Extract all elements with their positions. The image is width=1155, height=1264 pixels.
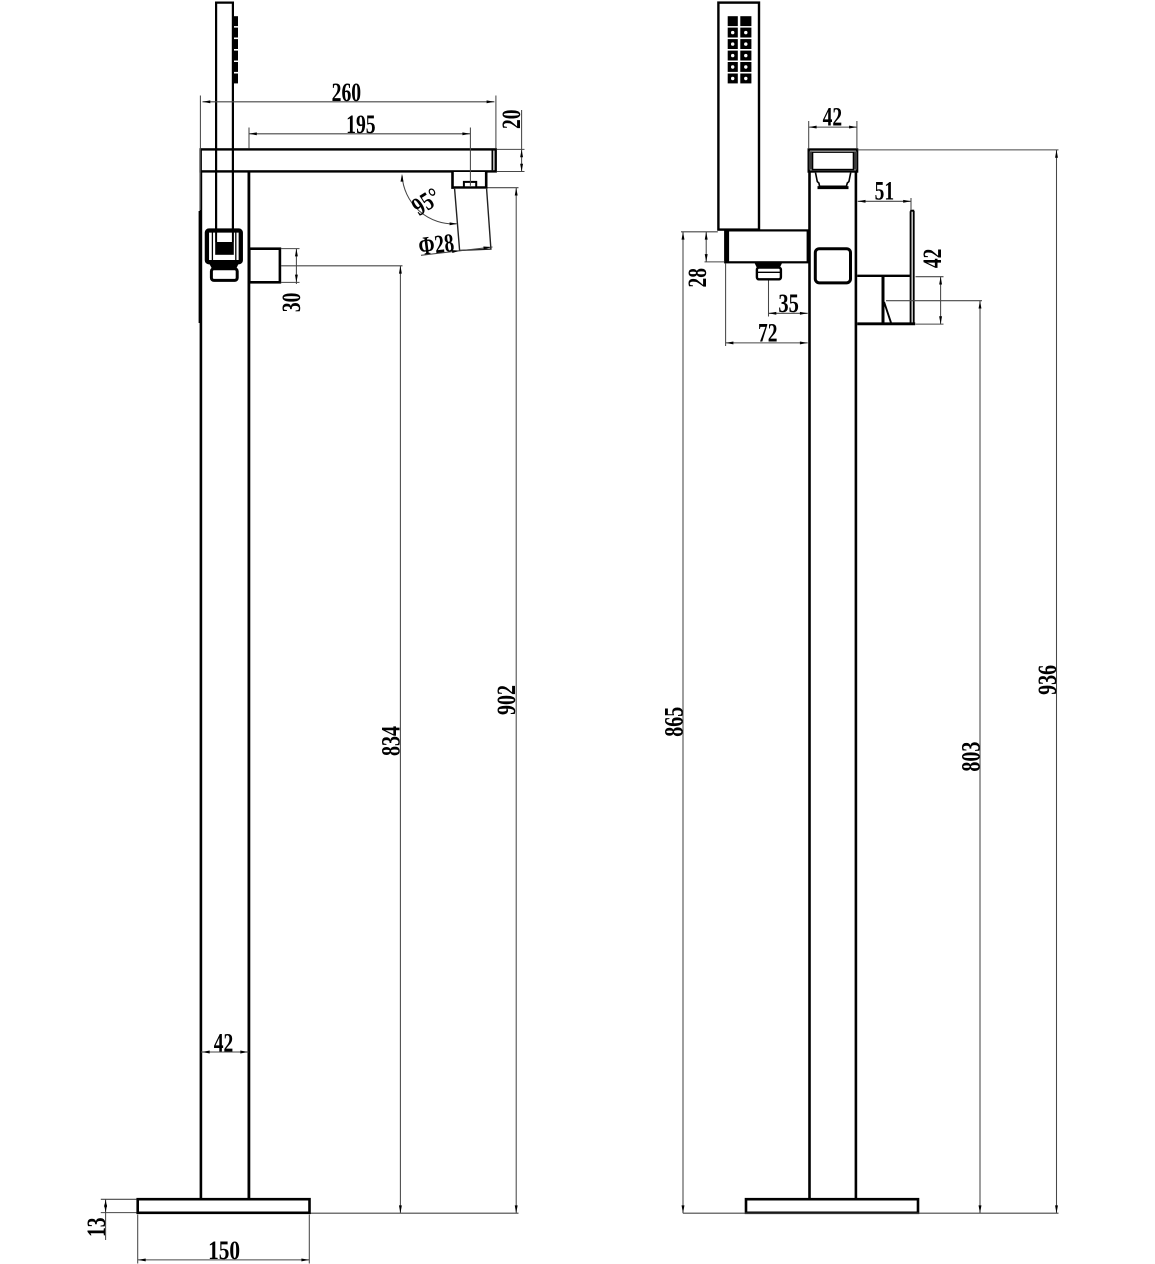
svg-text:936: 936 (1033, 665, 1062, 695)
svg-text:28: 28 (683, 268, 712, 288)
svg-text:150: 150 (208, 1236, 240, 1264)
svg-text:Φ28: Φ28 (417, 228, 456, 261)
svg-text:195: 195 (346, 110, 376, 139)
svg-text:30: 30 (277, 293, 306, 313)
svg-text:51: 51 (875, 176, 895, 205)
svg-text:20: 20 (497, 110, 526, 130)
svg-text:803: 803 (957, 742, 986, 772)
svg-text:42: 42 (823, 102, 843, 131)
svg-text:902: 902 (492, 685, 521, 715)
svg-text:865: 865 (659, 707, 688, 737)
svg-text:42: 42 (918, 249, 947, 269)
svg-text:35: 35 (778, 289, 799, 318)
svg-text:42: 42 (214, 1028, 234, 1057)
svg-text:13: 13 (82, 1217, 111, 1237)
svg-text:834: 834 (376, 726, 405, 756)
svg-text:72: 72 (758, 319, 778, 348)
svg-text:260: 260 (332, 78, 362, 107)
